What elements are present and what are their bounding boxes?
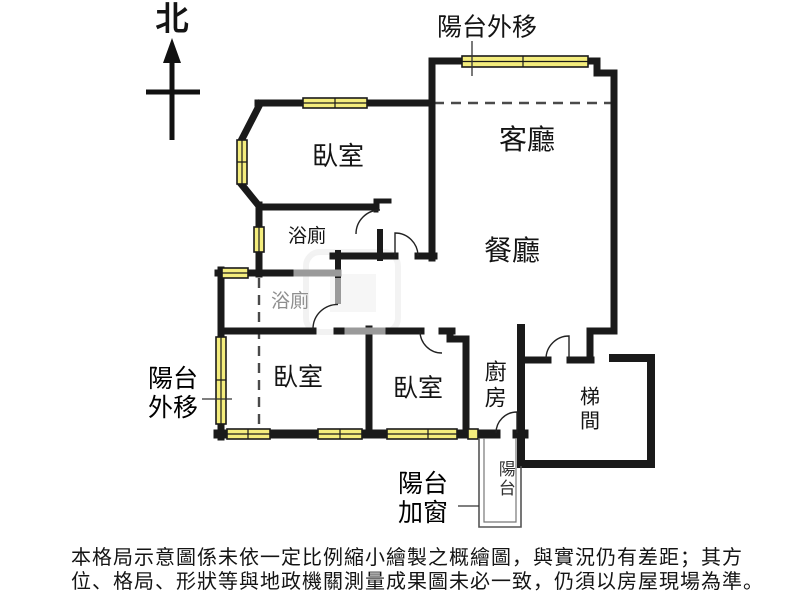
- door-arc: [546, 336, 569, 359]
- room-label-living: 客廳: [499, 125, 555, 157]
- room-label-balcony: 陽台: [495, 460, 515, 498]
- room-label-stairwell: 梯間: [576, 386, 599, 434]
- room-label-bathroom-lower: 浴廁: [271, 291, 309, 313]
- window-marker: [237, 140, 247, 184]
- annotation-balcony-ext-left: 陽台 外移: [148, 365, 198, 423]
- window-marker: [303, 98, 367, 108]
- annotation-balcony-ext-top: 陽台外移: [437, 15, 537, 44]
- room-label-bedroom-top: 臥室: [312, 142, 364, 172]
- disclaimer-line2: 位、格局、形狀等與地政機關測量成果圖未必一致，仍須以房屋現場為準。: [71, 571, 743, 595]
- north-label: 北: [156, 2, 189, 40]
- floor-plan: 北 臥室 客廳 餐廳 浴廁 浴廁 臥室 臥室 廚房 梯間 陽台 陽台外移 陽台 …: [0, 0, 800, 600]
- room-label-dining: 餐廳: [484, 236, 540, 268]
- door-arc: [356, 210, 380, 234]
- window-marker: [462, 56, 588, 67]
- window-marker: [318, 429, 362, 439]
- room-label-bedroom-left: 臥室: [273, 365, 323, 394]
- window-marker: [227, 429, 270, 439]
- room-label-bedroom-mid: 臥室: [393, 376, 443, 405]
- window-marker: [254, 227, 264, 252]
- room-label-kitchen: 廚房: [481, 360, 506, 412]
- window-marker: [222, 268, 248, 278]
- north-arrow-icon: [146, 38, 200, 140]
- window-marker: [216, 337, 226, 424]
- window-marker: [387, 429, 457, 439]
- watermark: [306, 252, 398, 332]
- window-marker: [468, 429, 478, 439]
- disclaimer-line1: 本格局示意圖係未依一定比例縮小繪製之概繪圖，與實況仍有差距；其方: [71, 547, 743, 571]
- annotation-balcony-added-window: 陽台 加窗: [398, 470, 448, 528]
- disclaimer-text: 本格局示意圖係未依一定比例縮小繪製之概繪圖，與實況仍有差距；其方 位、格局、形狀…: [71, 547, 743, 594]
- room-label-bathroom-upper: 浴廁: [288, 226, 326, 248]
